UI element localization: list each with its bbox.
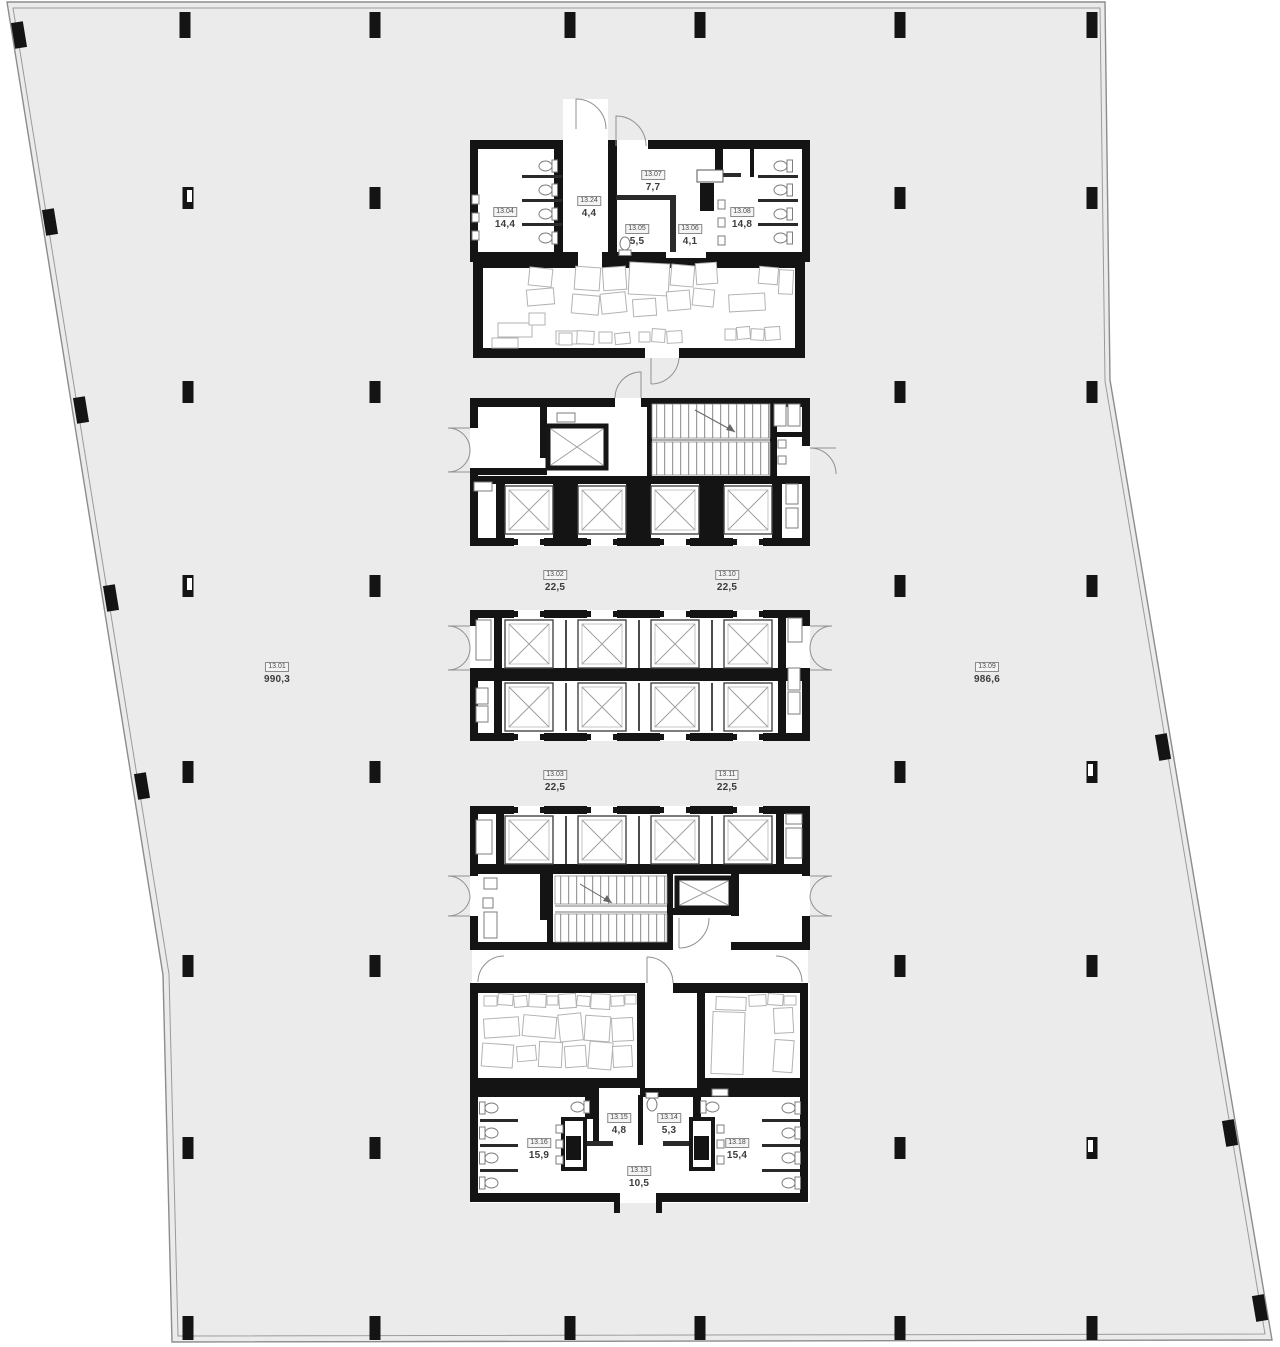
- room-label-13-09: 13.09 986,6: [974, 655, 1000, 685]
- room-area-value: 7,7: [641, 182, 665, 193]
- room-area-value: 10,5: [627, 1178, 651, 1189]
- room-label-13-15: 13.15 4,8: [607, 1106, 631, 1136]
- floor-plan-sheet: 13.01 990,3 13.09 986,6 13.04 14,4 13.24…: [0, 0, 1280, 1347]
- elevator-bank-block: [448, 610, 832, 741]
- room-number-badge: 13.10: [715, 570, 739, 580]
- room-label-13-02: 13.02 22,5: [543, 563, 567, 593]
- room-area-value: 5,3: [657, 1125, 681, 1136]
- room-number-badge: 13.11: [716, 770, 739, 780]
- room-number-badge: 13.05: [625, 224, 649, 234]
- room-label-13-01: 13.01 990,3: [264, 655, 290, 685]
- room-area-value: 14,8: [730, 219, 754, 230]
- room-area-value: 22,5: [715, 582, 739, 593]
- room-area-value: 14,4: [493, 219, 517, 230]
- room-label-13-11: 13.11 22,5: [716, 763, 739, 793]
- room-area-value: 4,4: [577, 208, 601, 219]
- room-area-value: 15,9: [527, 1150, 551, 1161]
- room-number-badge: 13.14: [657, 1113, 681, 1123]
- room-number-badge: 13.03: [543, 770, 567, 780]
- room-number-badge: 13.13: [627, 1166, 651, 1176]
- room-number-badge: 13.06: [678, 224, 702, 234]
- room-label-13-06: 13.06 4,1: [678, 217, 702, 247]
- room-label-13-13: 13.13 10,5: [627, 1159, 651, 1189]
- lower-stair-elevator-block: [448, 806, 832, 983]
- room-number-badge: 13.02: [543, 570, 567, 580]
- room-number-badge: 13.04: [493, 207, 517, 217]
- room-area-value: 5,5: [625, 236, 649, 247]
- room-label-13-07: 13.07 7,7: [641, 163, 665, 193]
- staircase-upper: [652, 404, 770, 475]
- room-label-13-24: 13.24 4,4: [577, 189, 601, 219]
- room-number-badge: 13.07: [641, 170, 665, 180]
- room-area-value: 22,5: [543, 782, 567, 793]
- room-number-badge: 13.08: [730, 207, 754, 217]
- room-number-badge: 13.18: [725, 1138, 749, 1148]
- room-number-badge: 13.24: [577, 196, 601, 206]
- room-area-value: 986,6: [974, 674, 1000, 685]
- room-area-value: 22,5: [716, 782, 739, 793]
- room-area-value: 990,3: [264, 674, 290, 685]
- room-number-badge: 13.09: [975, 662, 999, 672]
- room-label-13-08: 13.08 14,8: [730, 200, 754, 230]
- room-area-value: 4,8: [607, 1125, 631, 1136]
- core-stair-elevator-block: [448, 372, 836, 546]
- room-number-badge: 13.01: [265, 662, 289, 672]
- room-label-13-14: 13.14 5,3: [657, 1106, 681, 1136]
- room-label-13-10: 13.10 22,5: [715, 563, 739, 593]
- room-label-13-05: 13.05 5,5: [625, 217, 649, 247]
- room-label-13-03: 13.03 22,5: [543, 763, 567, 793]
- room-number-badge: 13.15: [607, 1113, 631, 1123]
- room-area-value: 22,5: [543, 582, 567, 593]
- room-label-13-18: 13.18 15,4: [725, 1131, 749, 1161]
- floor-plan-canvas: [0, 0, 1280, 1347]
- service-shaft-filled: [700, 183, 714, 211]
- room-label-13-16: 13.16 15,9: [527, 1131, 551, 1161]
- core-sanitary-block-bottom: [470, 1088, 810, 1213]
- room-area-value: 4,1: [678, 236, 702, 247]
- room-area-value: 15,4: [725, 1150, 749, 1161]
- room-number-badge: 13.16: [527, 1138, 551, 1148]
- room-label-13-04: 13.04 14,4: [493, 200, 517, 230]
